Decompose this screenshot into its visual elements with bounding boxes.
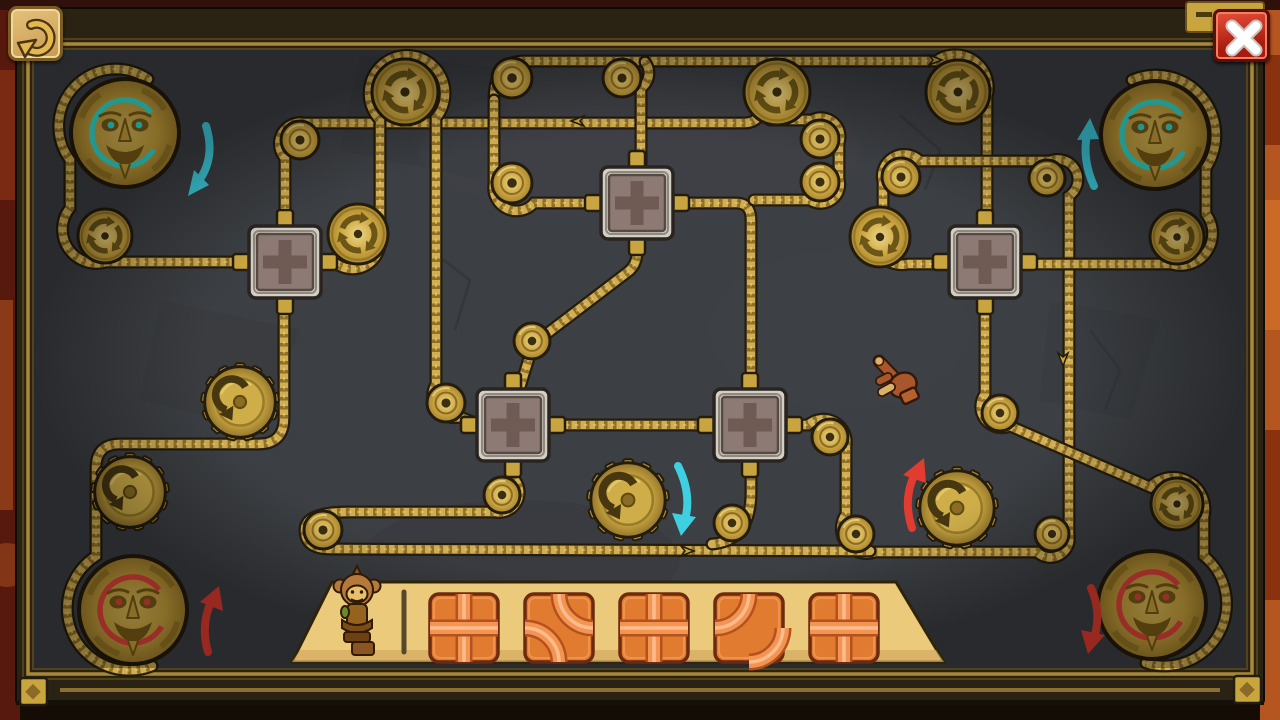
rope-tile-curve-tl-br[interactable] [715, 594, 783, 662]
frame-corner-stud-icon [20, 678, 47, 705]
puzzle-board [0, 0, 1280, 720]
rope-tile-cross[interactable] [430, 594, 498, 662]
undo-rotate-left-icon [11, 9, 66, 64]
rope-tile-curve-tr-bl[interactable] [525, 594, 593, 662]
close-button[interactable] [1213, 9, 1270, 62]
undo-button[interactable] [8, 6, 63, 61]
rope-tile-cross[interactable] [620, 594, 688, 662]
close-x-icon [1216, 12, 1273, 65]
board-vignette [34, 50, 1246, 668]
rope-tile-cross[interactable] [810, 594, 878, 662]
frame-corner-stud-icon [1234, 676, 1261, 703]
game-window [0, 0, 1280, 720]
